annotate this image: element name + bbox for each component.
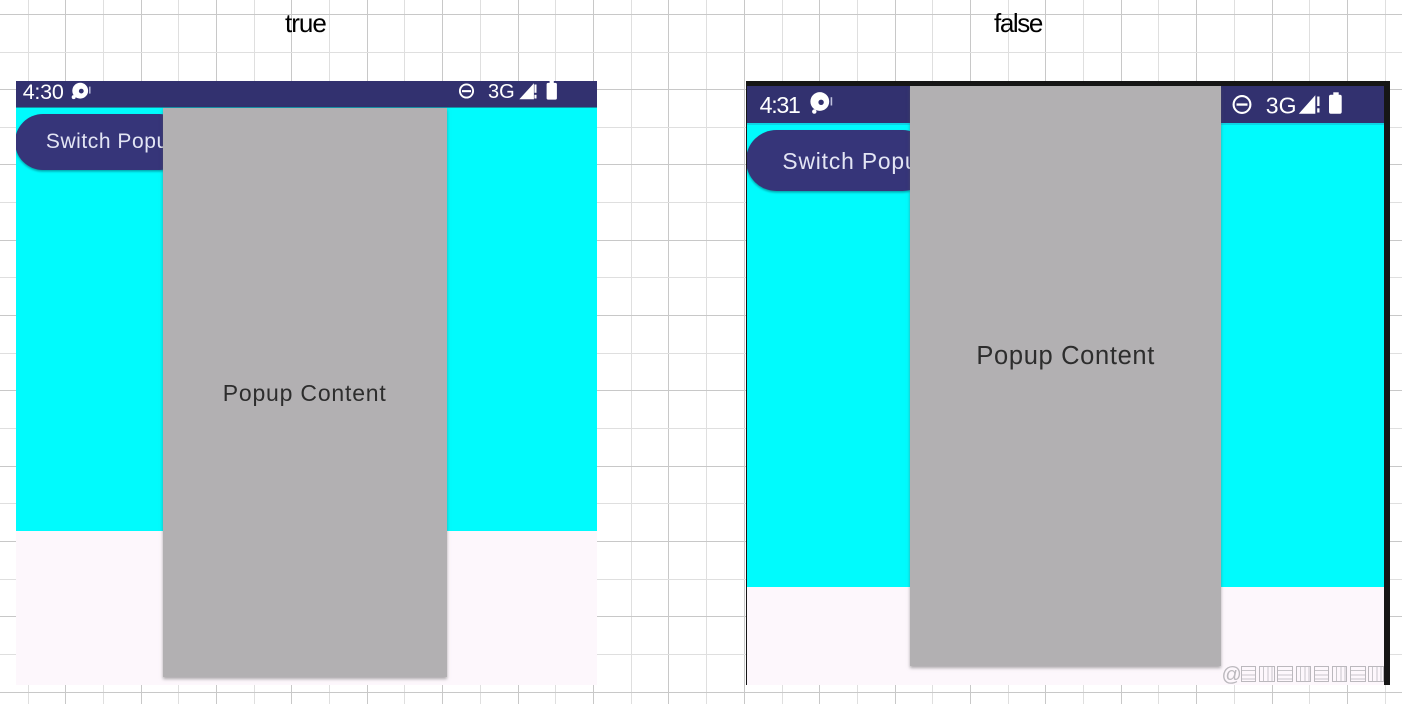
svg-text:3G: 3G xyxy=(1266,92,1297,118)
svg-text:3G: 3G xyxy=(488,81,515,103)
